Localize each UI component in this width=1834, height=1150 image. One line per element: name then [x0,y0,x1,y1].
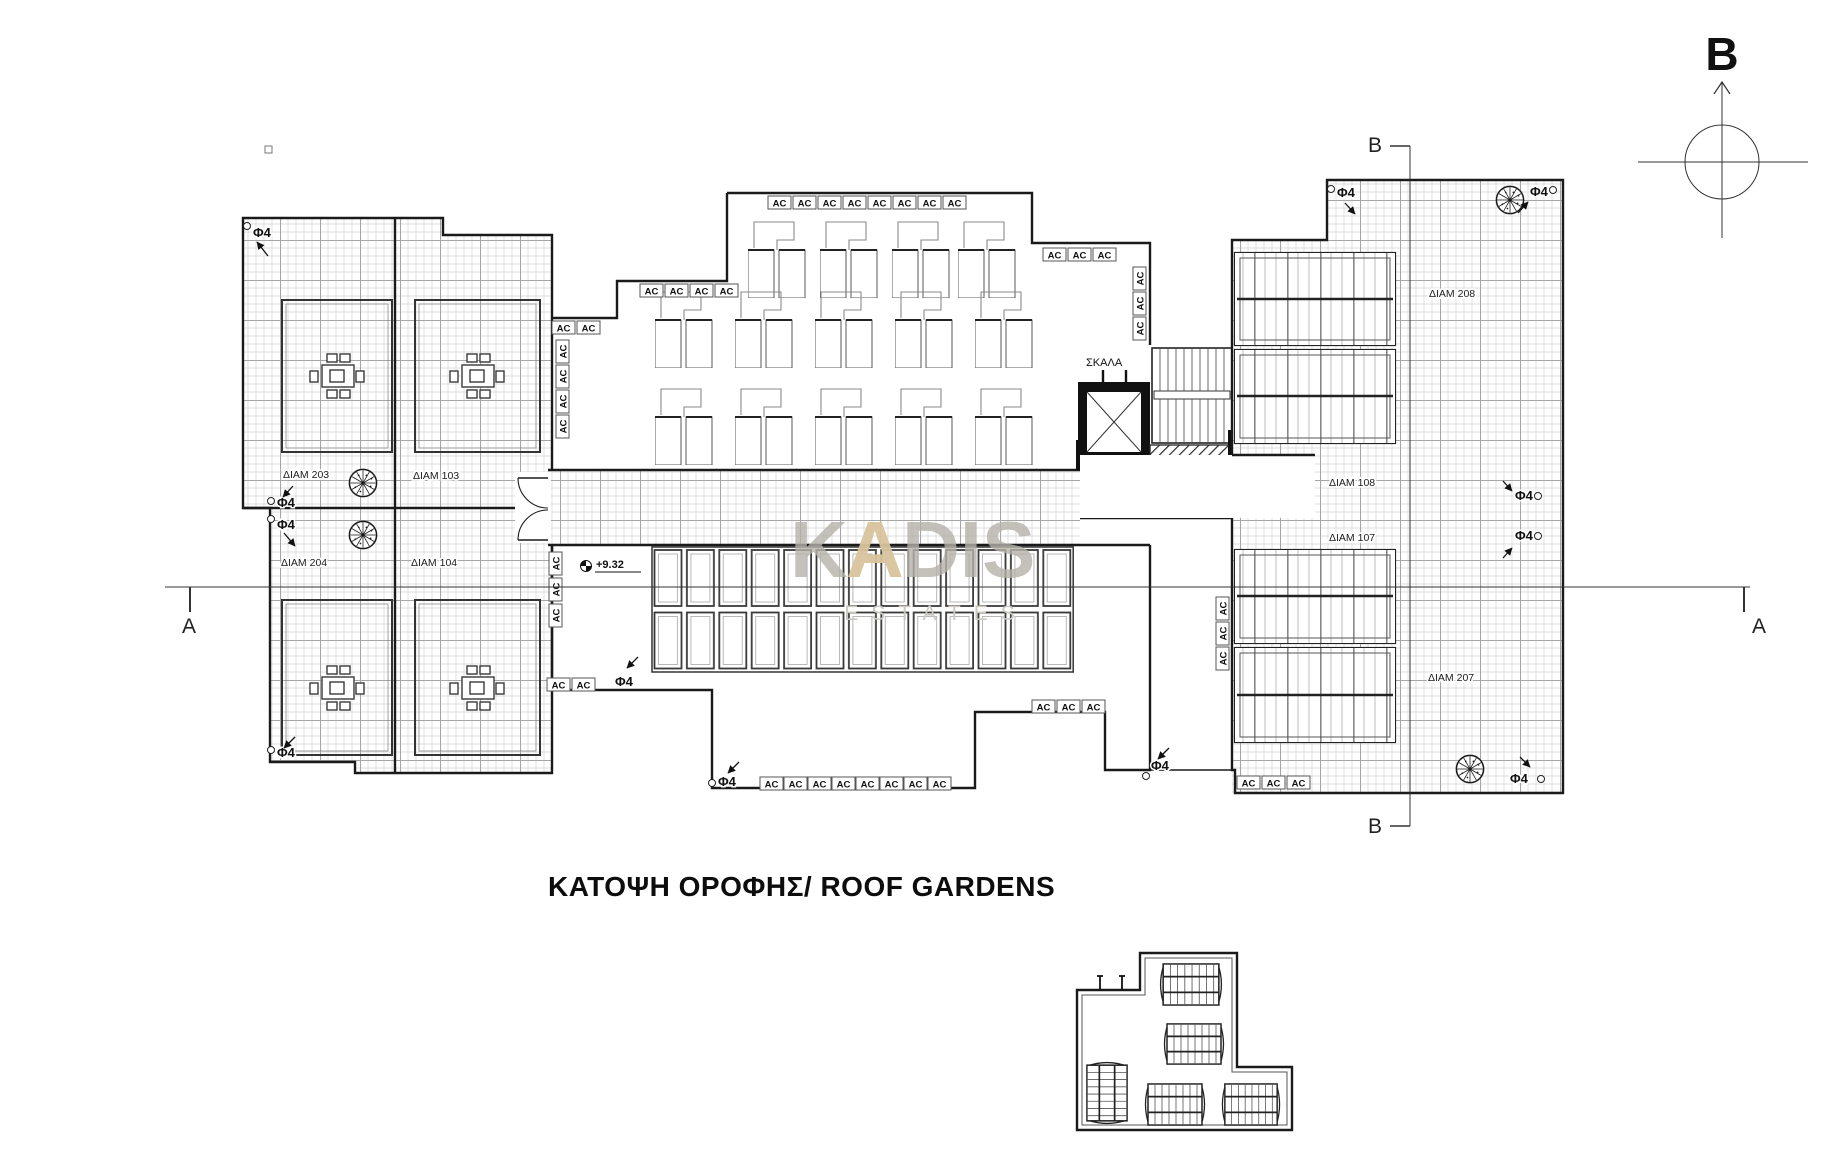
stairs [1152,348,1232,443]
svg-text:Φ4: Φ4 [1151,758,1170,773]
ac-unit-label: AC [577,681,591,692]
ac-unit-label: AC [1242,779,1256,790]
ac-pair-icon [735,292,792,368]
ac-unit-label: AC [798,199,812,210]
ac-unit-label: AC [837,780,851,791]
water-tank-icon [1087,1063,1127,1124]
ac-unit-label: AC [1219,627,1230,641]
ac-unit-label: AC [1062,703,1076,714]
ac-pair-icon [892,222,949,298]
svg-text:Φ4: Φ4 [277,745,296,760]
ac-unit-label: AC [1136,297,1147,311]
vent-pipes [1097,976,1125,990]
svg-text:Φ4: Φ4 [615,674,634,689]
svg-text:Φ4: Φ4 [1515,488,1534,503]
watermark-part1: K [790,505,848,594]
ac-unit-label: AC [848,199,862,210]
ac-unit-label: AC [559,370,570,384]
ac-unit-label: AC [582,324,596,335]
drain-marker: Φ4 [1143,748,1170,780]
north-label: B [1705,28,1738,80]
stairs-label: ΣΚΑΛΑ [1086,357,1123,369]
ac-unit-label: AC [559,420,570,434]
ac-pair-icon [735,389,792,465]
ac-unit-label: AC [885,780,899,791]
ac-unit-label: AC [1267,779,1281,790]
svg-text:Φ4: Φ4 [1530,184,1549,199]
ac-unit-label: AC [1292,779,1306,790]
floor-plan-canvas: +9.32 ΣΚΑΛΑ [0,0,1834,1150]
ac-unit-label: AC [695,287,709,298]
apartment-label-204: ΔΙΑΜ 204 [281,557,327,569]
ac-unit-label: AC [1136,322,1147,336]
tree-icon [349,469,376,496]
ac-unit-label: AC [909,780,923,791]
ac-unit-label: AC [1048,251,1062,262]
ac-unit-label: AC [861,780,875,791]
section-label-a-right: A [1752,615,1766,638]
ac-unit-label: AC [765,780,779,791]
ac-unit-label: AC [948,199,962,210]
stair-core: ΣΚΑΛΑ [1076,348,1236,470]
ac-pair-icon [655,292,712,368]
ac-unit-label: AC [559,395,570,409]
ac-unit-label: AC [923,199,937,210]
watermark-subtitle: ESTATES [844,602,1028,625]
right-roof-block [1080,180,1563,793]
ac-unit-label: AC [1219,602,1230,616]
ac-pair-icon [975,389,1032,465]
central-roof [552,193,1150,465]
ac-pair-icon [815,292,872,368]
svg-text:Φ4: Φ4 [253,225,272,240]
svg-text:Φ4: Φ4 [1510,771,1529,786]
apartment-label-203: ΔΙΑΜ 203 [283,469,329,481]
apartment-label-107: ΔΙΑΜ 107 [1329,532,1375,544]
water-tank-icon [1146,1084,1205,1125]
elevation-marker: +9.32 [581,559,642,572]
tree-icon [1456,755,1483,782]
ac-pair-icon [975,292,1032,368]
ac-unit-label: AC [552,583,563,597]
ac-unit-label: AC [823,199,837,210]
apartment-label-104: ΔΙΑΜ 104 [411,557,457,569]
svg-text:Φ4: Φ4 [1337,185,1356,200]
tree-icon [1496,186,1523,213]
ac-pair-icon [748,222,805,298]
section-label-b-top: B [1368,134,1382,157]
ac-pair-icon [820,222,877,298]
ac-pair-icon [958,222,1015,298]
reference-dot [265,146,272,153]
ac-pair-icon [655,389,712,465]
svg-text:Φ4: Φ4 [277,517,296,532]
elevation-value: +9.32 [596,559,624,571]
ac-unit-label: AC [1037,703,1051,714]
ac-unit-label: AC [933,780,947,791]
water-tank-icon [1222,1084,1279,1125]
drain-marker: Φ4 [615,657,638,689]
ac-unit-label: AC [720,287,734,298]
ac-unit-label: AC [1087,703,1101,714]
ac-unit-label: AC [1219,652,1230,666]
water-tank-icon [1161,964,1222,1005]
water-tank-icon [1165,1024,1224,1064]
ac-unit-label: AC [645,287,659,298]
ac-unit-label: AC [873,199,887,210]
ac-condenser-pairs [655,222,1032,465]
tree-icon [349,521,376,548]
svg-text:Φ4: Φ4 [718,774,737,789]
ac-unit-label: AC [789,780,803,791]
ac-unit-label: AC [773,199,787,210]
ac-pair-icon [815,389,872,465]
ac-unit-label: AC [1098,251,1112,262]
watermark-accent: A [846,505,904,594]
ac-unit-label: AC [552,609,563,623]
ac-unit-label: AC [559,345,570,359]
ac-unit-label: AC [813,780,827,791]
apartment-label-207: ΔΙΑΜ 207 [1428,672,1474,684]
ac-unit-label: AC [898,199,912,210]
ac-unit-label: AC [1073,251,1087,262]
ac-pair-icon [895,389,952,465]
roof-plan-screenshot: +9.32 ΣΚΑΛΑ [0,0,1834,1150]
ac-unit-label: AC [1136,272,1147,286]
ac-unit-label: AC [552,557,563,571]
ac-pair-icon [895,292,952,368]
svg-text:Φ4: Φ4 [1515,528,1534,543]
watermark-part2: DIS [902,505,1035,594]
apartment-label-103: ΔΙΑΜ 103 [413,470,459,482]
north-indicator: B [1638,28,1808,238]
apartment-label-108: ΔΙΑΜ 108 [1329,477,1375,489]
section-label-b-bottom: B [1368,815,1382,838]
section-label-a-left: A [182,615,196,638]
svg-text:Φ4: Φ4 [277,495,296,510]
ac-unit-label: AC [557,324,571,335]
apartment-label-208: ΔΙΑΜ 208 [1429,288,1475,300]
ac-unit-label: AC [552,681,566,692]
inset-tank-plan [1077,953,1292,1130]
ac-unit-label: AC [670,287,684,298]
plan-title: ΚΑΤΟΨΗ ΟΡΟΦΗΣ/ ROOF GARDENS [548,871,1055,902]
